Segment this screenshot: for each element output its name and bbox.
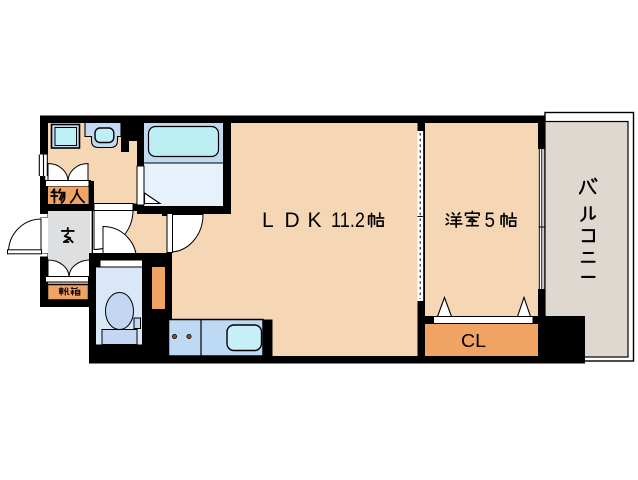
svg-text:CL: CL (461, 331, 486, 351)
svg-text:5: 5 (485, 209, 496, 232)
svg-text:K: K (308, 209, 322, 232)
svg-text:D: D (285, 209, 300, 232)
svg-text:L: L (262, 209, 274, 232)
svg-text:11.2: 11.2 (331, 209, 365, 232)
